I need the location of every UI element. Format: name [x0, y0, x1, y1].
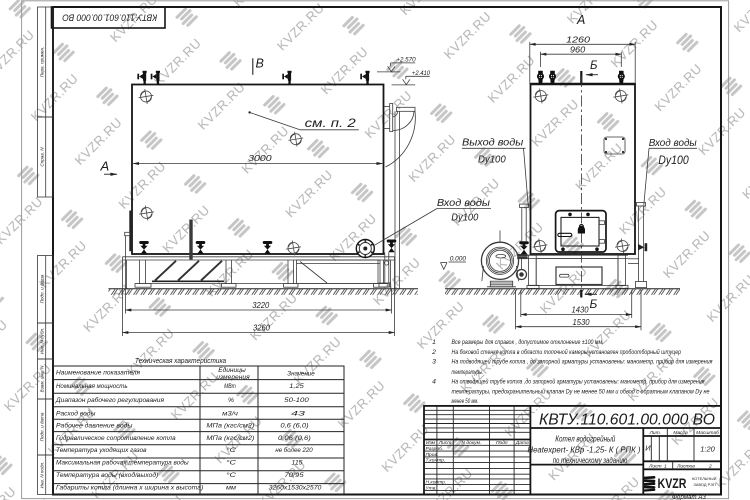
svg-text:0,6 (6,0): 0,6 (6,0)	[280, 422, 308, 429]
svg-text:3000: 3000	[248, 153, 272, 163]
svg-text:Лист: Лист	[438, 440, 452, 446]
svg-text:Листов: Листов	[676, 464, 695, 470]
svg-text:На боковой стенке котла в обла: На боковой стенке котла в области топочн…	[452, 348, 682, 356]
svg-text:Изм: Изм	[426, 440, 436, 446]
svg-text:1530: 1530	[573, 318, 591, 327]
svg-text:Подп: Подп	[496, 440, 508, 446]
svg-text:Dy100: Dy100	[478, 154, 506, 166]
svg-text:1430: 1430	[572, 306, 590, 315]
svg-text:1: 1	[432, 339, 436, 346]
svg-text:Габариты котла (длинна х ширин: Габариты котла (длинна х ширина х высота…	[56, 483, 203, 491]
svg-text:Перв. примен.: Перв. примен.	[40, 47, 45, 78]
svg-text:3: 3	[432, 359, 436, 366]
svg-text:+2.410: +2.410	[412, 70, 430, 77]
svg-text:2: 2	[431, 349, 436, 356]
svg-text:4: 4	[432, 379, 436, 386]
svg-text:Максимальная рабочая температу: Максимальная рабочая температура воды	[56, 459, 189, 467]
svg-text:KVZR: KVZR	[658, 475, 687, 491]
svg-text:не более 220: не более 220	[275, 446, 312, 454]
svg-text:Т.контр.: Т.контр.	[426, 458, 446, 464]
svg-text:°С: °С	[226, 459, 236, 467]
svg-text:Вход воды: Вход воды	[649, 138, 698, 149]
svg-text:А: А	[576, 13, 585, 27]
svg-text:Dy100: Dy100	[658, 155, 689, 167]
svg-text:менее 50 мм.: менее 50 мм.	[452, 398, 479, 405]
svg-text:Инв. N подл.: Инв. N подл.	[40, 462, 45, 489]
svg-text:Все размеры для справок , допу: Все размеры для справок , допустимое отк…	[452, 338, 604, 346]
svg-text:Утв.: Утв.	[426, 485, 437, 491]
svg-text:Б: Б	[590, 60, 598, 72]
svg-text:Пров.: Пров.	[426, 452, 439, 458]
svg-text:И: И	[645, 444, 651, 453]
svg-text:Разраб.: Разраб.	[426, 446, 444, 452]
svg-text:На отводящей трубе котла ,до з: На отводящей трубе котла ,до запорной ар…	[452, 378, 705, 386]
svg-text:КВТУ.110.601.00.000 ВО: КВТУ.110.601.00.000 ВО	[62, 12, 158, 23]
svg-text:Гидравлическое сопротивление к: Гидравлическое сопротивление котла	[56, 434, 176, 442]
svg-text:Подп. и дата: Подп. и дата	[40, 412, 45, 441]
svg-text:см. п. 2: см. п. 2	[305, 118, 357, 130]
svg-text:Температура уходящих газов: Температура уходящих газов	[56, 446, 147, 454]
svg-text:1260: 1260	[566, 36, 591, 45]
svg-text:КОТЕЛЬНЫЙ: КОТЕЛЬНЫЙ	[692, 476, 717, 481]
svg-text:50-100: 50-100	[284, 397, 309, 404]
svg-text:115: 115	[292, 460, 303, 467]
svg-text:°С: °С	[226, 446, 236, 454]
svg-text:960: 960	[570, 45, 586, 54]
svg-text:Вход воды: Вход воды	[437, 198, 491, 209]
svg-text:2: 2	[708, 464, 712, 470]
svg-text:+2.570: +2.570	[396, 57, 416, 64]
svg-text:Единицы: Единицы	[218, 366, 246, 374]
svg-text:МПа (кгс/см2): МПа (кгс/см2)	[206, 435, 254, 442]
svg-text:Котел водогрейный: Котел водогрейный	[555, 434, 615, 443]
svg-text:Б: Б	[590, 297, 598, 311]
svg-text:Н.контр.: Н.контр.	[426, 480, 447, 486]
svg-text:На подводящей трубе котла ,: На подводящей трубе котла , до запорной …	[452, 358, 713, 366]
svg-text:Подп. и дата: Подп. и дата	[40, 274, 45, 303]
svg-text:Выход воды: Выход воды	[462, 138, 524, 149]
svg-text:температуры.: температуры.	[452, 369, 484, 376]
svg-text:МПа (кгс/см2): МПа (кгс/см2)	[206, 422, 254, 429]
svg-text:мм: мм	[226, 484, 236, 491]
svg-text:Dy100: Dy100	[451, 212, 478, 224]
svg-text:1,25: 1,25	[289, 383, 304, 390]
svg-text:Справ. N: Справ. N	[40, 147, 45, 167]
svg-text:%: %	[228, 397, 234, 404]
svg-text:по техническому заданию: по техническому заданию	[553, 456, 628, 465]
svg-text:3220: 3220	[252, 301, 270, 310]
svg-text:Масса: Масса	[673, 430, 688, 436]
svg-text:Номинальная мощность: Номинальная мощность	[56, 383, 128, 390]
svg-text:0.000: 0.000	[450, 255, 467, 262]
svg-text:Масштаб: Масштаб	[696, 430, 719, 436]
svg-text:КВТУ.110.601.00.000 ВО: КВТУ.110.601.00.000 ВО	[539, 411, 715, 428]
svg-text:Температура воды (вход/выход): Температура воды (вход/выход)	[56, 471, 158, 479]
svg-text:N докум.: N докум.	[462, 440, 482, 446]
svg-text:ЗАВОД РЭП: ЗАВОД РЭП	[694, 482, 716, 487]
svg-text:Значение: Значение	[287, 371, 315, 378]
svg-text:Техническая характеристика: Техническая характеристика	[135, 358, 226, 365]
svg-text:Лит.: Лит.	[649, 430, 661, 436]
svg-text:м3/ч: м3/ч	[222, 410, 238, 417]
svg-text:1:20: 1:20	[700, 445, 715, 454]
svg-text:3260: 3260	[253, 323, 271, 332]
svg-text:70/95: 70/95	[284, 472, 304, 479]
svg-text:Наименование показателя: Наименование показателя	[56, 370, 140, 377]
svg-text:°С: °С	[226, 471, 236, 479]
svg-text:1: 1	[664, 464, 667, 470]
svg-text:температуры, предохранительный: температуры, предохранительный клапан Dу…	[452, 387, 710, 395]
svg-text:Взам. инв. N: Взам. инв. N	[40, 365, 45, 392]
svg-text:0,06 (0,6): 0,06 (0,6)	[278, 435, 311, 442]
svg-text:Формат А3: Формат А3	[672, 494, 706, 500]
svg-text:Расход воды: Расход воды	[56, 409, 95, 417]
svg-text:Диапазон рабочего регулировани: Диапазон рабочего регулирования	[55, 396, 164, 404]
svg-text:Лист: Лист	[648, 464, 662, 470]
svg-text:Рабочее давление воды: Рабочее давление воды	[56, 421, 132, 429]
svg-text:измерения: измерения	[216, 374, 250, 381]
svg-text:3260х1530х2570: 3260х1530х2570	[269, 484, 322, 491]
svg-text:Инв. N дубл.: Инв. N дубл.	[40, 328, 45, 355]
svg-text:А: А	[100, 159, 110, 174]
svg-text:В: В	[256, 57, 264, 71]
svg-text:43: 43	[291, 410, 305, 417]
svg-text:Heatexpert- КВр -1,25- К ( РПК: Heatexpert- КВр -1,25- К ( РПК )	[528, 446, 641, 455]
svg-text:МВт: МВт	[224, 383, 236, 390]
